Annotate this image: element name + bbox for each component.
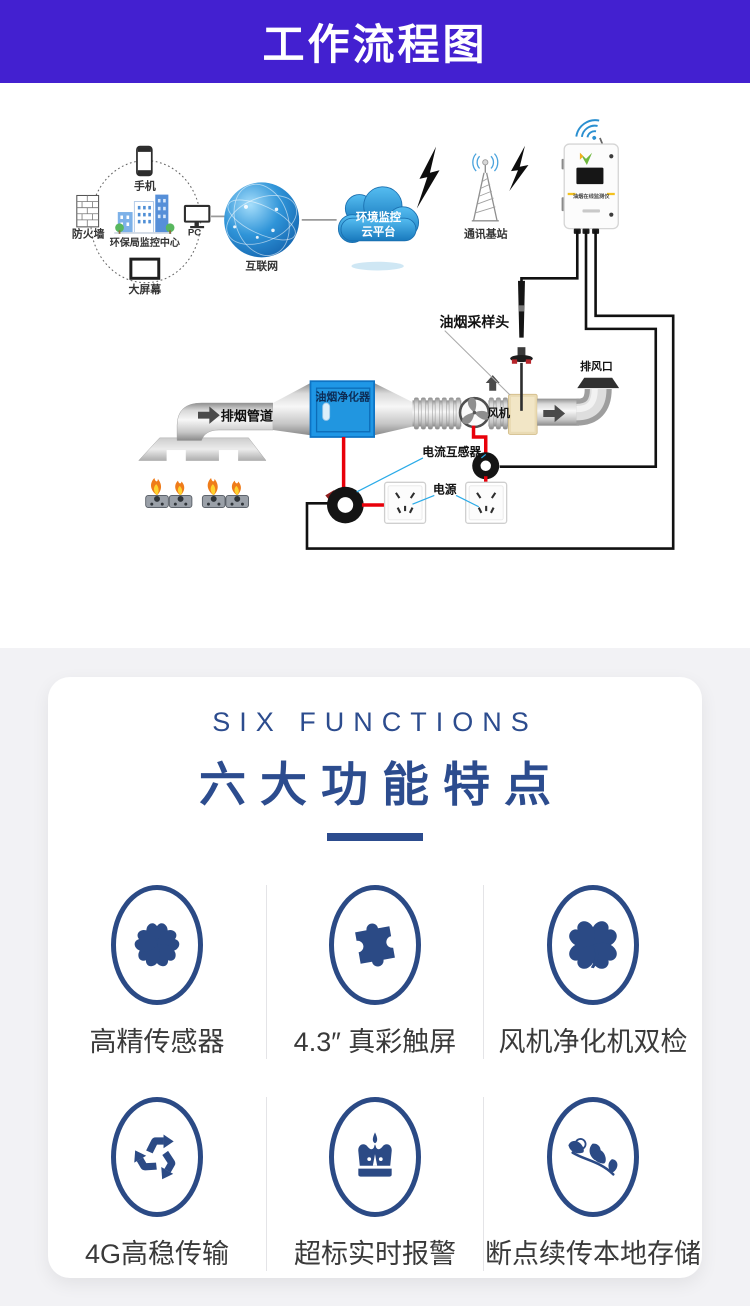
label-screen: 大屏幕 <box>129 282 163 296</box>
pc-icon <box>185 206 209 228</box>
lightning-icon <box>417 147 440 209</box>
firewall-icon <box>77 195 99 226</box>
feature-label: 高精传感器 <box>89 1020 224 1059</box>
six-functions-section: SIX FUNCTIONS 六大功能特点 高精传感器 <box>0 648 750 1306</box>
big-screen-icon <box>131 259 159 278</box>
comm-tower-icon <box>472 154 499 221</box>
stove-bodies <box>146 495 249 507</box>
flower-icon <box>111 885 203 1005</box>
monitor-device <box>562 116 619 234</box>
feature-label: 超标实时报警 <box>294 1232 456 1271</box>
label-transformer: 电流互感器 <box>422 445 481 459</box>
buildings-icon <box>114 195 174 234</box>
exhaust-hood <box>139 438 266 462</box>
workflow-diagram-svg: 手机 防火墙 环保局监控中心 PC 大屏幕 互联网 环境监控 云平台 通讯基站 … <box>0 83 750 648</box>
label-cloud-line1: 环境监控 <box>356 210 402 224</box>
probe-pointer-line <box>445 331 510 396</box>
vent-elbow <box>576 389 598 412</box>
label-device: 油烟在线监测仪 <box>573 192 610 200</box>
feature-label: 4.3″ 真彩触屏 <box>294 1020 457 1059</box>
vent-flare <box>577 378 619 388</box>
label-center: 环保局监控中心 <box>110 236 180 249</box>
phone-icon <box>137 147 152 176</box>
label-pc: PC <box>188 228 201 239</box>
label-firewall: 防火墙 <box>72 226 105 240</box>
title-underline-bar <box>327 833 423 841</box>
label-power: 电源 <box>433 483 457 497</box>
feature-label: 风机净化机双检 <box>498 1020 687 1059</box>
label-vent: 排风口 <box>580 359 613 373</box>
power-outlet-left <box>385 482 426 523</box>
cone-left <box>273 383 310 435</box>
label-station: 通讯基站 <box>464 226 508 240</box>
label-cloud-line2: 云平台 <box>361 225 395 239</box>
feature-dual-check: 风机净化机双检 <box>484 885 702 1059</box>
six-functions-card: SIX FUNCTIONS 六大功能特点 高精传感器 <box>48 677 702 1278</box>
label-pipe: 排烟管道 <box>221 408 273 423</box>
feature-row-1: 高精传感器 4.3″ 真彩触屏 <box>48 885 702 1059</box>
flame-icon <box>151 478 241 495</box>
label-internet: 互联网 <box>245 259 278 273</box>
clover-icon <box>547 885 639 1005</box>
stoves <box>146 478 249 508</box>
device-screen <box>576 168 603 185</box>
feature-4g: 4G高稳传输 <box>48 1097 266 1271</box>
feature-touchscreen: 4.3″ 真彩触屏 <box>266 885 484 1059</box>
label-fan: 风机 <box>487 406 510 420</box>
feature-sensor: 高精传感器 <box>48 885 266 1059</box>
page-header: 工作流程图 <box>0 0 750 83</box>
purifier-box <box>310 381 374 437</box>
sampling-probe <box>510 281 533 411</box>
feature-alarm: 超标实时报警 <box>266 1097 484 1271</box>
recycle-icon <box>111 1097 203 1217</box>
label-purifier: 油烟净化器 <box>316 389 370 403</box>
feature-label: 4G高稳传输 <box>85 1232 229 1271</box>
label-phone: 手机 <box>134 178 156 192</box>
feature-label: 断点续传本地存储 <box>485 1232 701 1271</box>
fan-icon <box>460 398 491 427</box>
lightning-icon-2 <box>509 146 528 191</box>
page-title: 工作流程图 <box>262 11 487 72</box>
workflow-diagram: 手机 防火墙 环保局监控中心 PC 大屏幕 互联网 环境监控 云平台 通讯基站 … <box>0 83 750 648</box>
feature-row-2: 4G高稳传输 超标实时报警 <box>48 1097 702 1271</box>
crown-icon <box>329 1097 421 1217</box>
label-probe: 油烟采样头 <box>440 314 510 330</box>
cone-right <box>374 383 412 435</box>
section-title-zh: 六大功能特点 <box>62 746 702 815</box>
puzzle-icon <box>329 885 421 1005</box>
feature-storage: 断点续传本地存储 <box>484 1097 702 1271</box>
leaf-icon <box>547 1097 639 1217</box>
current-transformer-ring-left <box>325 487 363 524</box>
section-title-en: SIX FUNCTIONS <box>48 707 702 738</box>
internet-globe-icon <box>220 177 304 264</box>
